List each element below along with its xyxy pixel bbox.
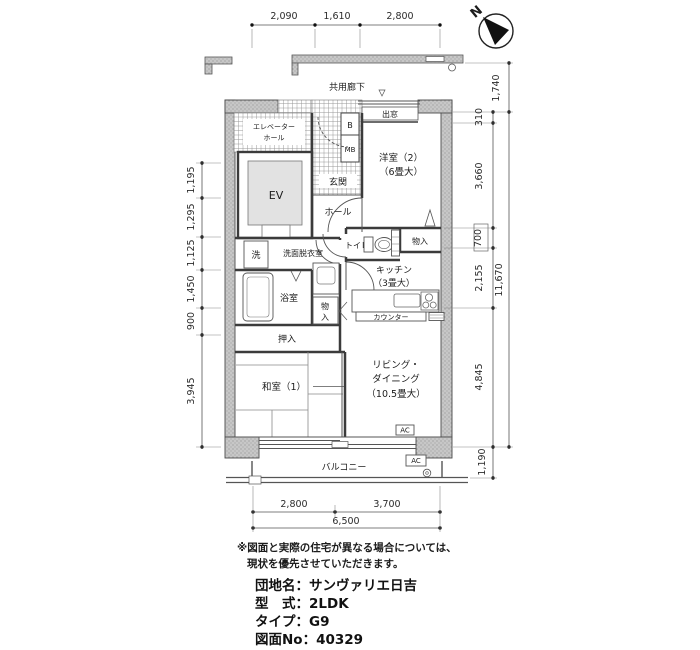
dim-right-3: 700 (473, 229, 484, 247)
shared-corridor: 共用廊下 (205, 55, 463, 93)
estate-name-label: 団地名： (255, 577, 309, 595)
title-row-drawing-no: 図面No：40329 (255, 631, 417, 649)
meter-boxes: B MB (341, 113, 359, 162)
bathroom: 浴室 物 入 (243, 263, 339, 324)
living-dining: リビング・ ダイニング （10.5畳大） AC (366, 359, 425, 435)
living-size: （10.5畳大） (366, 388, 425, 400)
balcony-label: バルコニー (322, 462, 367, 473)
bathtub (243, 273, 273, 321)
dim-left-2: 1,295 (186, 203, 197, 230)
balcony-drain (423, 469, 431, 477)
oshiire-label: 押入 (278, 333, 296, 345)
hall-label: ホール (324, 207, 351, 218)
dim-left-4: 1,450 (186, 275, 197, 302)
dim-right-4: 2,155 (474, 264, 485, 291)
dim-bottom-total: 6,500 (332, 516, 359, 527)
dim-left-1: 1,195 (186, 166, 197, 193)
dim-right-6: 1,190 (477, 448, 488, 475)
kitchen-door-arc (346, 262, 374, 290)
dimensions-left: 1,195 1,295 1,125 1,450 900 3,945 (186, 161, 221, 448)
title-row-estate: 団地名：サンヴァリエ日吉 (255, 577, 417, 595)
toilet-room: トイレ (345, 230, 400, 256)
elevator-shaft: EV (238, 152, 312, 238)
ac-indoor-label: AC (400, 427, 410, 435)
plan-type-label: タイプ： (255, 613, 309, 631)
dim-bottom-1: 2,800 (280, 499, 307, 510)
kitchen-label: キッチン (376, 265, 412, 276)
closet-hall-label: 物入 (412, 236, 428, 246)
corridor-label: 共用廊下 (329, 81, 365, 93)
western-room2-label: 洋室（2） (379, 152, 423, 164)
washroom-label: 洗面脱衣室 (283, 248, 323, 258)
toilet-bowl (375, 238, 393, 252)
washroom: 洗 洗面脱衣室 (244, 241, 323, 268)
kitchen-counter (352, 290, 439, 312)
drawing-no-label: 図面No： (255, 631, 316, 649)
title-row-type: 型 式：2LDK (255, 595, 417, 613)
dimensions-bottom: 2,800 3,700 6,500 (251, 486, 441, 532)
north-label: N (468, 3, 486, 21)
disclaimer-note: ※図面と実際の住宅が異なる場合については、 現状を優先させていただきます。 (237, 540, 487, 572)
kitchen-size: （3畳大） (373, 277, 415, 289)
dim-right-0: 1,740 (491, 74, 502, 101)
tatami-lines (236, 352, 343, 437)
disclaimer-line-2: 現状を優先させていただきます。 (237, 556, 487, 572)
dim-right-1: 310 (474, 108, 485, 126)
meter-box-b-label: B (347, 121, 353, 130)
dimensions-top: 2,090 1,610 2,800 (250, 11, 441, 48)
title-block: 団地名：サンヴァリエ日吉 型 式：2LDK タイプ：G9 図面No：40329 (255, 577, 417, 649)
dim-bottom-2: 3,700 (373, 499, 400, 510)
unit-type-label: 型 式： (255, 595, 309, 613)
north-compass: N (468, 3, 513, 48)
japanese-room1-label: 和室（1） (262, 381, 306, 393)
drawing-no-value: 40329 (316, 631, 363, 649)
closet-door-mark (425, 210, 435, 226)
japanese-room-1: 和室（1） (236, 352, 344, 437)
dim-right-total: 11,670 (494, 263, 505, 296)
title-row-plan-type: タイプ：G9 (255, 613, 417, 631)
level-marker-icon (379, 90, 385, 96)
closet-bath-label-2: 入 (321, 313, 329, 322)
bathroom-door-mark (291, 271, 301, 281)
bathroom-label: 浴室 (280, 292, 298, 304)
elevator-hall-label-2: ホール (264, 134, 285, 142)
counter-label: カウンター (374, 313, 409, 322)
living-label-1: リビング・ (372, 359, 420, 371)
dim-left-5: 900 (186, 312, 197, 330)
ac-outdoor-label: AC (411, 457, 421, 465)
western-room-2: 洋室（2） （6畳大） (379, 152, 423, 178)
kitchen: キッチン （3畳大） カウンター (352, 265, 444, 322)
elevator-label: EV (269, 189, 284, 202)
dim-top-2: 1,610 (323, 11, 350, 22)
dim-top-1: 2,090 (270, 11, 297, 22)
dimensions-right: 1,740 310 3,660 700 2,155 4,845 1,190 11… (444, 61, 513, 479)
dim-right-5: 4,845 (474, 363, 485, 390)
elevator-hall-label-1: エレベーター (253, 122, 295, 131)
plan-type-value: G9 (309, 613, 329, 631)
disclaimer-line-1: ※図面と実際の住宅が異なる場合については、 (237, 540, 487, 556)
unit-type-value: 2LDK (309, 595, 349, 613)
toilet-tank (364, 237, 373, 252)
western-room2-size: （6畳大） (379, 166, 423, 178)
entrance-label: 玄関 (329, 176, 347, 188)
estate-name-value: サンヴァリエ日吉 (309, 577, 417, 595)
bay-window: 出窓 (358, 90, 420, 122)
closet-bath-label-1: 物 (321, 301, 329, 311)
bay-window-label: 出窓 (382, 109, 398, 119)
dim-left-3: 1,125 (186, 239, 197, 266)
dim-right-2: 3,660 (474, 162, 485, 189)
dim-left-6: 3,945 (186, 377, 197, 404)
dim-top-3: 2,800 (386, 11, 413, 22)
elevator-door (262, 225, 290, 238)
elevator-hall: エレベーター ホール (243, 119, 305, 145)
living-label-2: ダイニング (372, 373, 420, 385)
washing-machine-label: 洗 (251, 249, 260, 261)
